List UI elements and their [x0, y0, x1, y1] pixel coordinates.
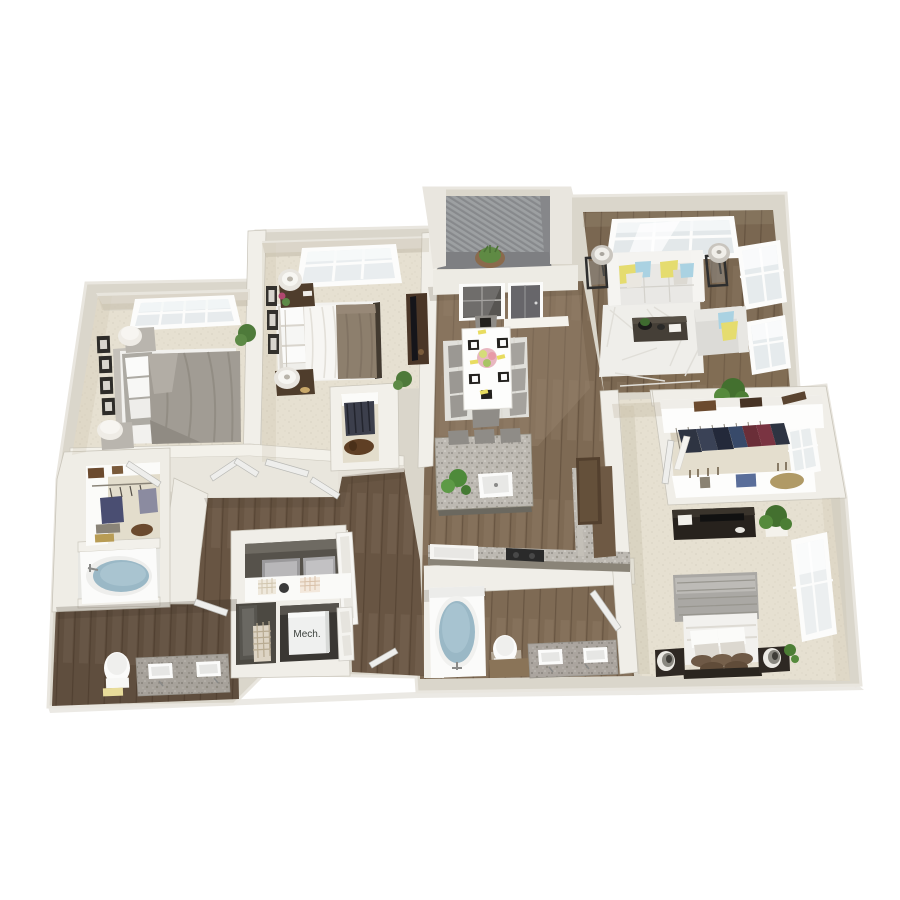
svg-text:Mech.: Mech. [293, 629, 320, 640]
